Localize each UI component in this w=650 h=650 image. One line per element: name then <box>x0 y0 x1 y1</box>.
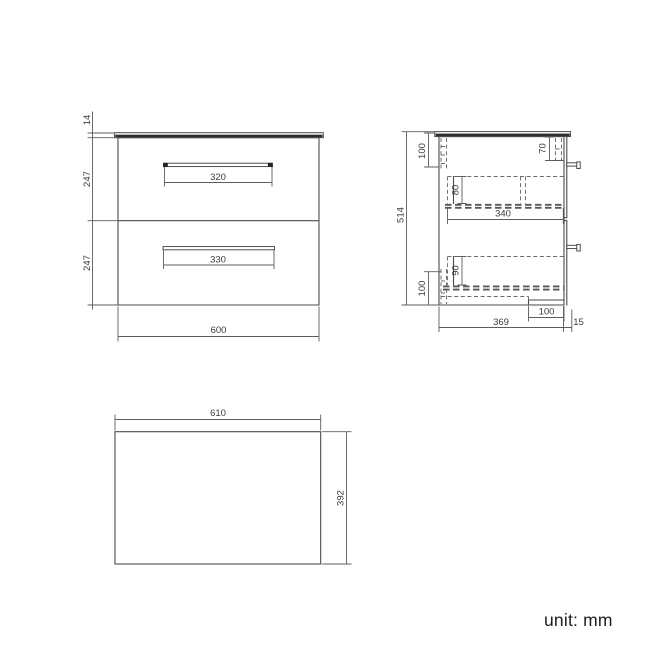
dim-top-front-rail: 70 <box>538 143 549 154</box>
upper-handle-left-cap <box>163 163 168 167</box>
front-upper-drawer-handle <box>163 163 272 167</box>
dim-top-overall-depth: 392 <box>336 490 347 506</box>
side-worktop <box>435 132 571 137</box>
side-dimension-lines <box>402 132 572 332</box>
dim-upper-handle-width: 320 <box>210 172 226 183</box>
front-view-drawing: 320 330 600 14 247 247 <box>82 112 323 341</box>
dim-bottom-recess: 100 <box>539 307 555 318</box>
top-view-outline <box>115 432 321 564</box>
dim-lower-drawer-height: 247 <box>82 255 93 271</box>
front-worktop-core <box>115 135 322 138</box>
technical-drawing-page: 320 330 600 14 247 247 <box>0 0 650 650</box>
dim-upper-drawer-inner-depth: 80 <box>451 185 462 196</box>
side-lower-handle-tip <box>577 244 580 251</box>
dim-overall-depth: 369 <box>493 317 509 328</box>
dim-top-back-rail: 100 <box>417 143 428 159</box>
side-cabinet-outline <box>439 137 567 305</box>
dim-upper-drawer-height: 247 <box>82 171 93 187</box>
upper-handle-bar <box>164 163 273 166</box>
dim-overall-height: 514 <box>396 207 407 223</box>
lower-handle-bar <box>163 247 275 250</box>
vanity-dimension-drawing: 320 330 600 14 247 247 <box>0 0 650 650</box>
side-upper-handle-tip <box>577 162 580 169</box>
side-upper-handle <box>567 162 580 169</box>
dim-drawer-length: 340 <box>495 209 511 220</box>
top-view-dimension-lines <box>115 415 351 564</box>
upper-handle-right-cap <box>268 163 273 167</box>
side-view-drawing: 514 100 70 80 340 90 100 100 369 15 <box>396 132 584 332</box>
dim-lower-drawer-inner-depth: 90 <box>451 265 462 276</box>
top-view-drawing: 610 392 <box>115 408 351 564</box>
front-lower-drawer-handle <box>163 247 275 250</box>
front-worktop <box>115 133 324 138</box>
dim-bottom-back-rail: 100 <box>417 281 428 297</box>
unit-label: unit: mm <box>544 610 644 631</box>
side-hidden-lines <box>441 138 564 304</box>
dim-top-overall-width: 610 <box>210 408 226 419</box>
side-lower-handle <box>567 244 580 251</box>
dim-worktop-thickness: 14 <box>82 115 93 126</box>
front-dimension-lines <box>88 112 319 341</box>
dim-front-overall-width: 600 <box>211 325 227 336</box>
side-worktop-core <box>436 134 570 137</box>
dim-lower-handle-width: 330 <box>210 255 226 266</box>
dim-handle-projection: 15 <box>573 317 584 328</box>
